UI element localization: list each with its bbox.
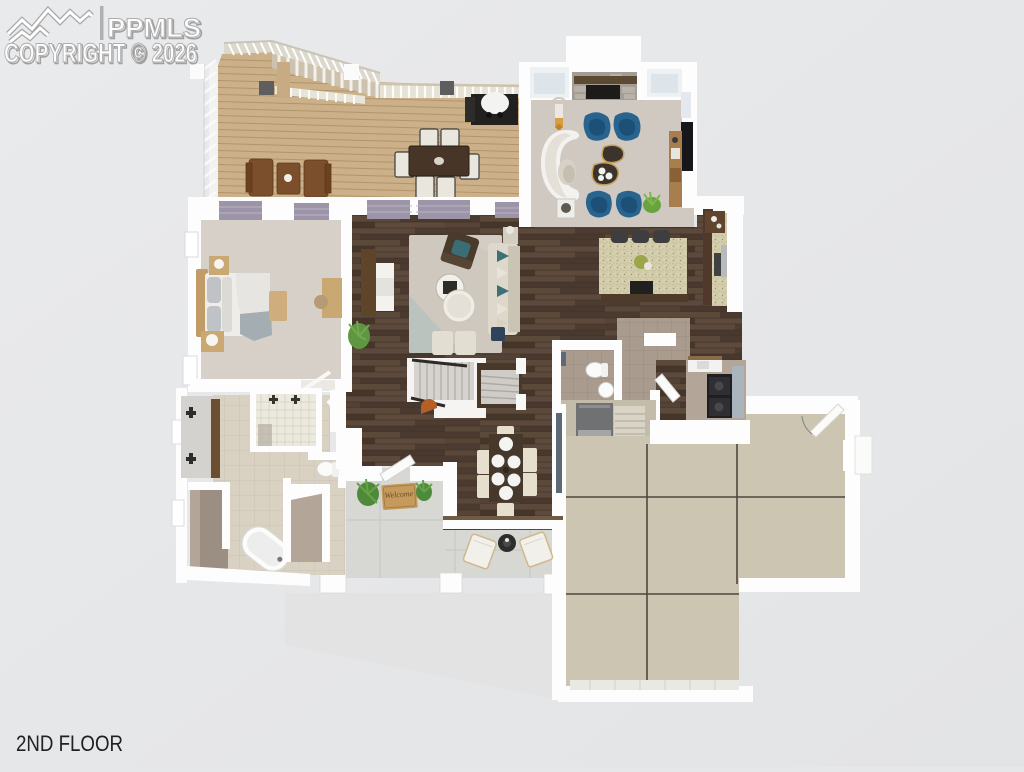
svg-text:COPYRIGHT © 2026: COPYRIGHT © 2026 — [4, 38, 197, 68]
svg-text:2ND FLOOR: 2ND FLOOR — [16, 731, 123, 756]
